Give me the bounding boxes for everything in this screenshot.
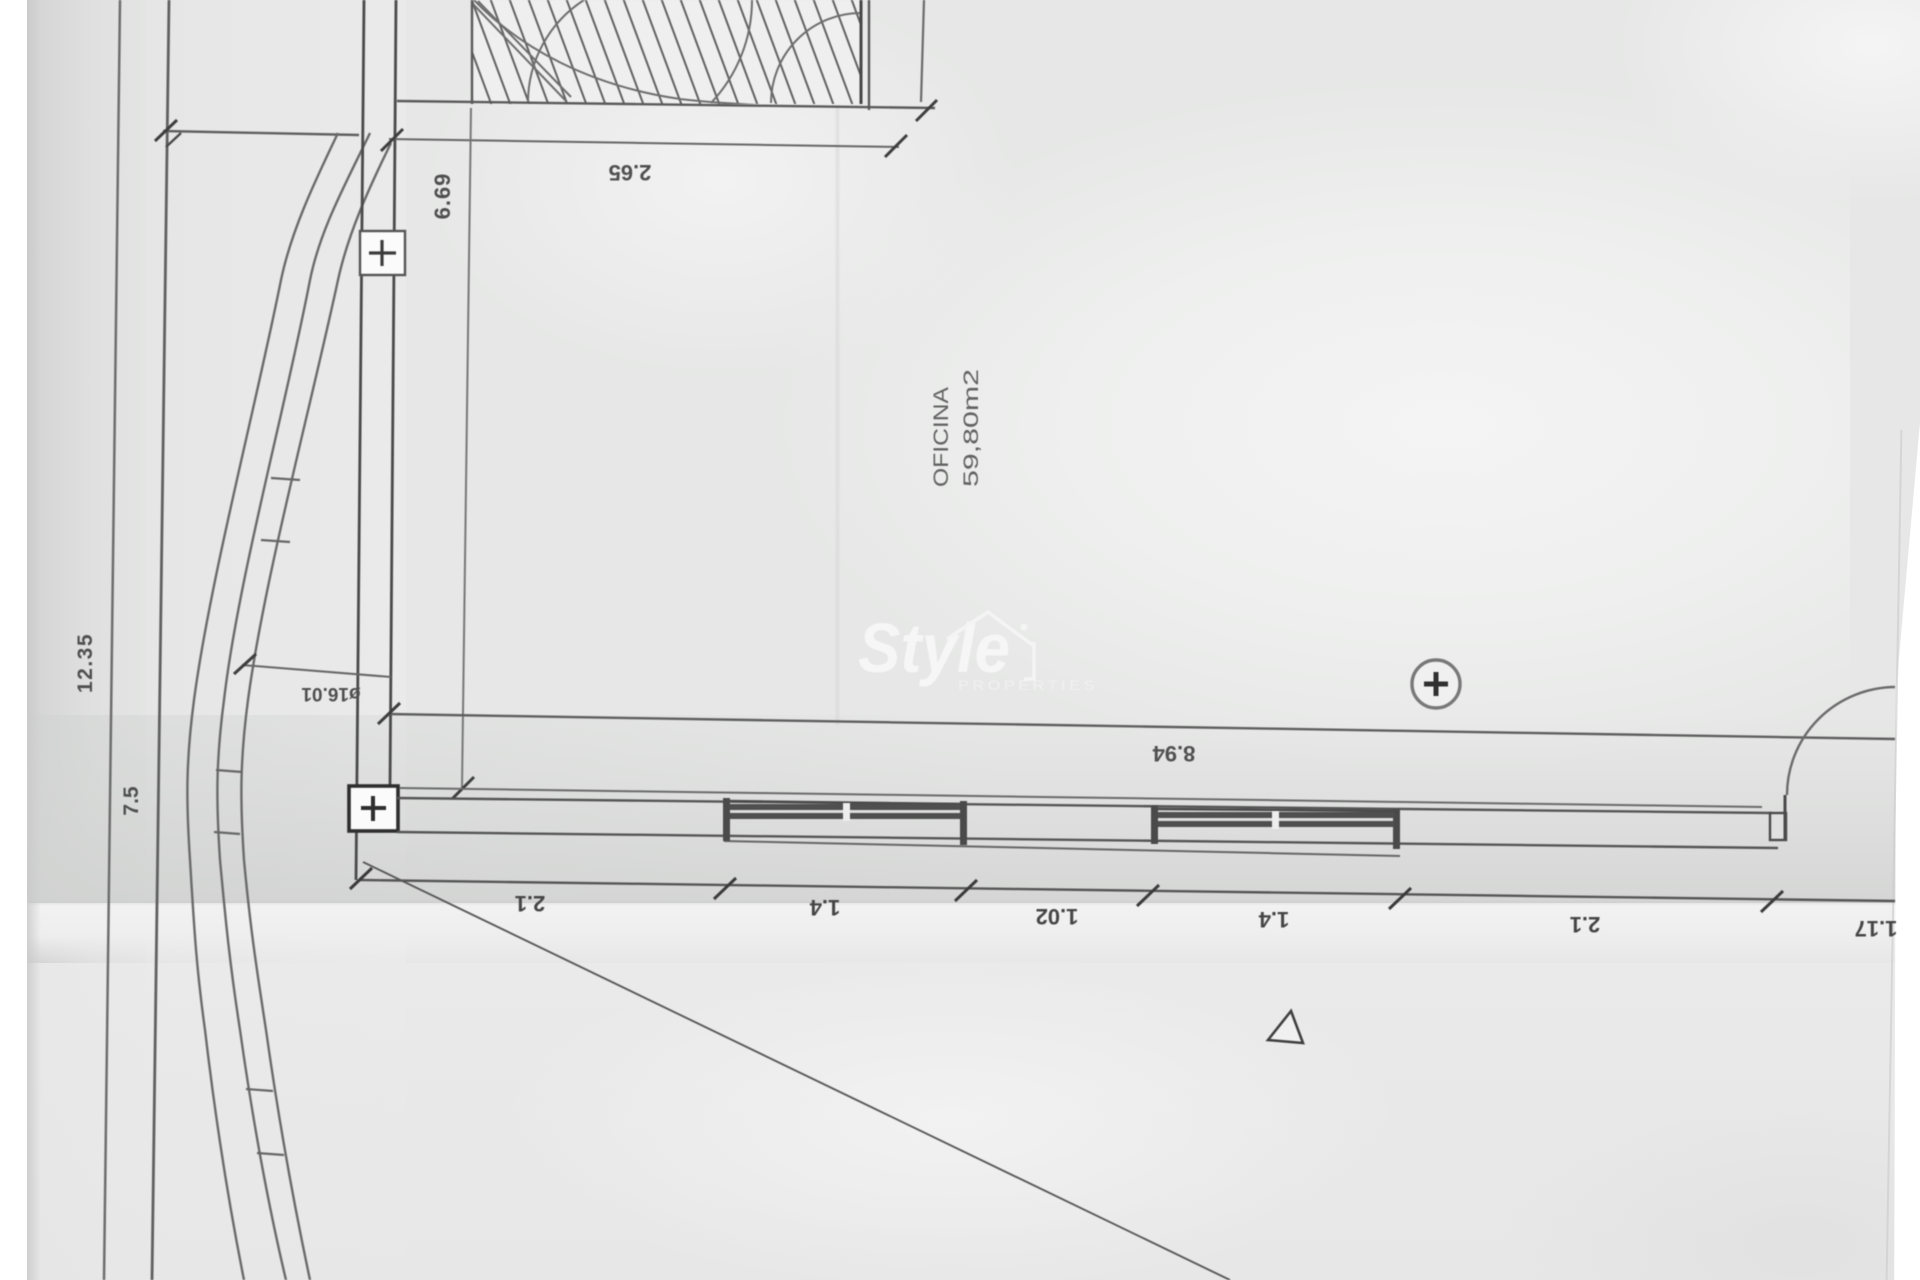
- svg-text:59,80m2: 59,80m2: [960, 369, 983, 487]
- svg-text:OFICINA: OFICINA: [930, 387, 953, 487]
- svg-text:6.69: 6.69: [430, 173, 455, 220]
- svg-text:2.1: 2.1: [1570, 912, 1601, 937]
- svg-text:12.35: 12.35: [74, 633, 97, 693]
- svg-text:8.94: 8.94: [1152, 741, 1196, 766]
- svg-text:7.5: 7.5: [120, 786, 143, 816]
- svg-text:1.17: 1.17: [1855, 916, 1898, 941]
- svg-text:PROPERTIES: PROPERTIES: [958, 677, 1098, 693]
- svg-text:2.1: 2.1: [515, 891, 546, 916]
- svg-text:Style: Style: [858, 609, 1010, 687]
- svg-text:1.4: 1.4: [809, 895, 840, 920]
- svg-text:1.02: 1.02: [1036, 904, 1079, 929]
- svg-text:1.4: 1.4: [1258, 907, 1289, 932]
- svg-text:ø16.01: ø16.01: [301, 683, 361, 704]
- svg-text:2.65: 2.65: [609, 160, 652, 185]
